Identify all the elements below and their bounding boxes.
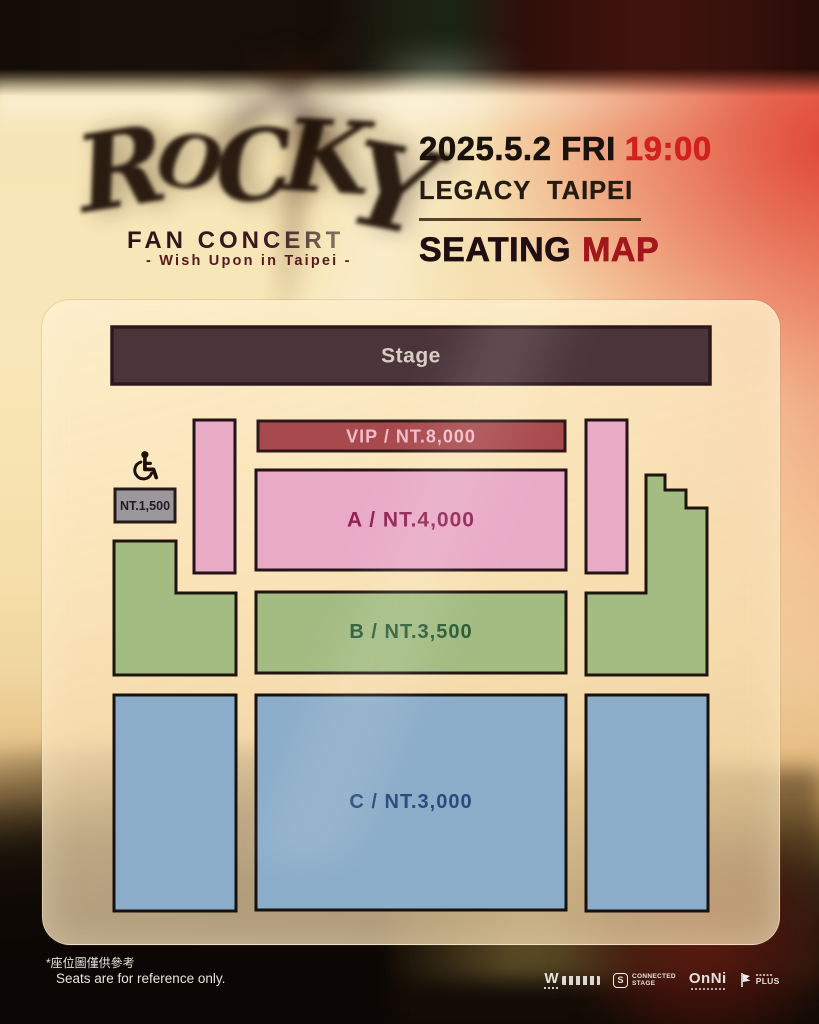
wheelchair-icon — [134, 451, 155, 479]
event-datetime: 2025.5.2 FRI19:00 — [419, 130, 712, 168]
sponsor-logos: W S CONNECTED STAGE OnNi PLUS — [544, 963, 756, 997]
seating-map-svg: Stage VIP / NT.8,000 A / NT.4,000 B / NT… — [42, 300, 780, 945]
w-mark-subtext — [544, 987, 558, 989]
plus-flag-icon — [740, 972, 752, 988]
wheelchair-price-label: NT.1,500 — [119, 499, 169, 513]
w-mark-icon: W — [544, 971, 558, 989]
section-c-left-column — [114, 695, 236, 911]
event-date: 2025.5.2 FRI — [419, 130, 616, 167]
tagline: - Wish Upon in Taipei - — [146, 253, 352, 269]
section-a-label: A / NT.4,000 — [347, 508, 475, 531]
w-brand-logo: W — [544, 971, 600, 989]
rocky-logo: ROCKY — [76, 100, 416, 305]
event-time: 19:00 — [625, 130, 712, 167]
plus-subtext — [756, 974, 773, 976]
header-divider — [419, 218, 641, 221]
onni-logo: OnNi — [689, 971, 727, 990]
seating-map-panel: Stage VIP / NT.8,000 A / NT.4,000 B / NT… — [42, 300, 780, 945]
section-c-right-column — [586, 695, 708, 911]
section-b-label: B / NT.3,500 — [349, 621, 472, 643]
plus-logo: PLUS — [740, 972, 780, 988]
w-brand-wordmark — [562, 976, 600, 985]
onni-subtext — [691, 988, 725, 990]
connected-stage-icon: S — [613, 973, 628, 988]
venue-name: LEGACY TAIPEI — [419, 177, 633, 206]
seating-word: SEATING — [419, 231, 571, 269]
w-mark-letter: W — [544, 971, 557, 986]
connected-stage-logo: S CONNECTED STAGE — [613, 973, 676, 988]
reference-note: *座位圖僅供參考 Seats are for reference only. — [46, 956, 225, 988]
seating-map-title: SEATINGMAP — [419, 231, 659, 270]
stage-label: Stage — [381, 344, 441, 367]
reference-note-en: Seats are for reference only. — [56, 971, 225, 988]
concert-poster: ROCKY FAN CONCERT - Wish Upon in Taipei … — [0, 0, 819, 1024]
map-word: MAP — [582, 231, 659, 269]
connected-stage-line2: STAGE — [632, 980, 676, 987]
section-c-label: C / NT.3,000 — [349, 791, 472, 813]
section-a-right-column — [586, 420, 627, 573]
section-vip-label: VIP / NT.8,000 — [346, 426, 476, 446]
onni-wordmark: OnNi — [689, 971, 727, 986]
reference-note-zh: *座位圖僅供參考 — [46, 956, 225, 971]
connected-stage-line1: CONNECTED — [632, 973, 676, 980]
fan-concert-subtitle: FAN CONCERT — [127, 227, 344, 255]
section-a-left-column — [194, 420, 235, 573]
plus-wordmark: PLUS — [756, 977, 780, 986]
